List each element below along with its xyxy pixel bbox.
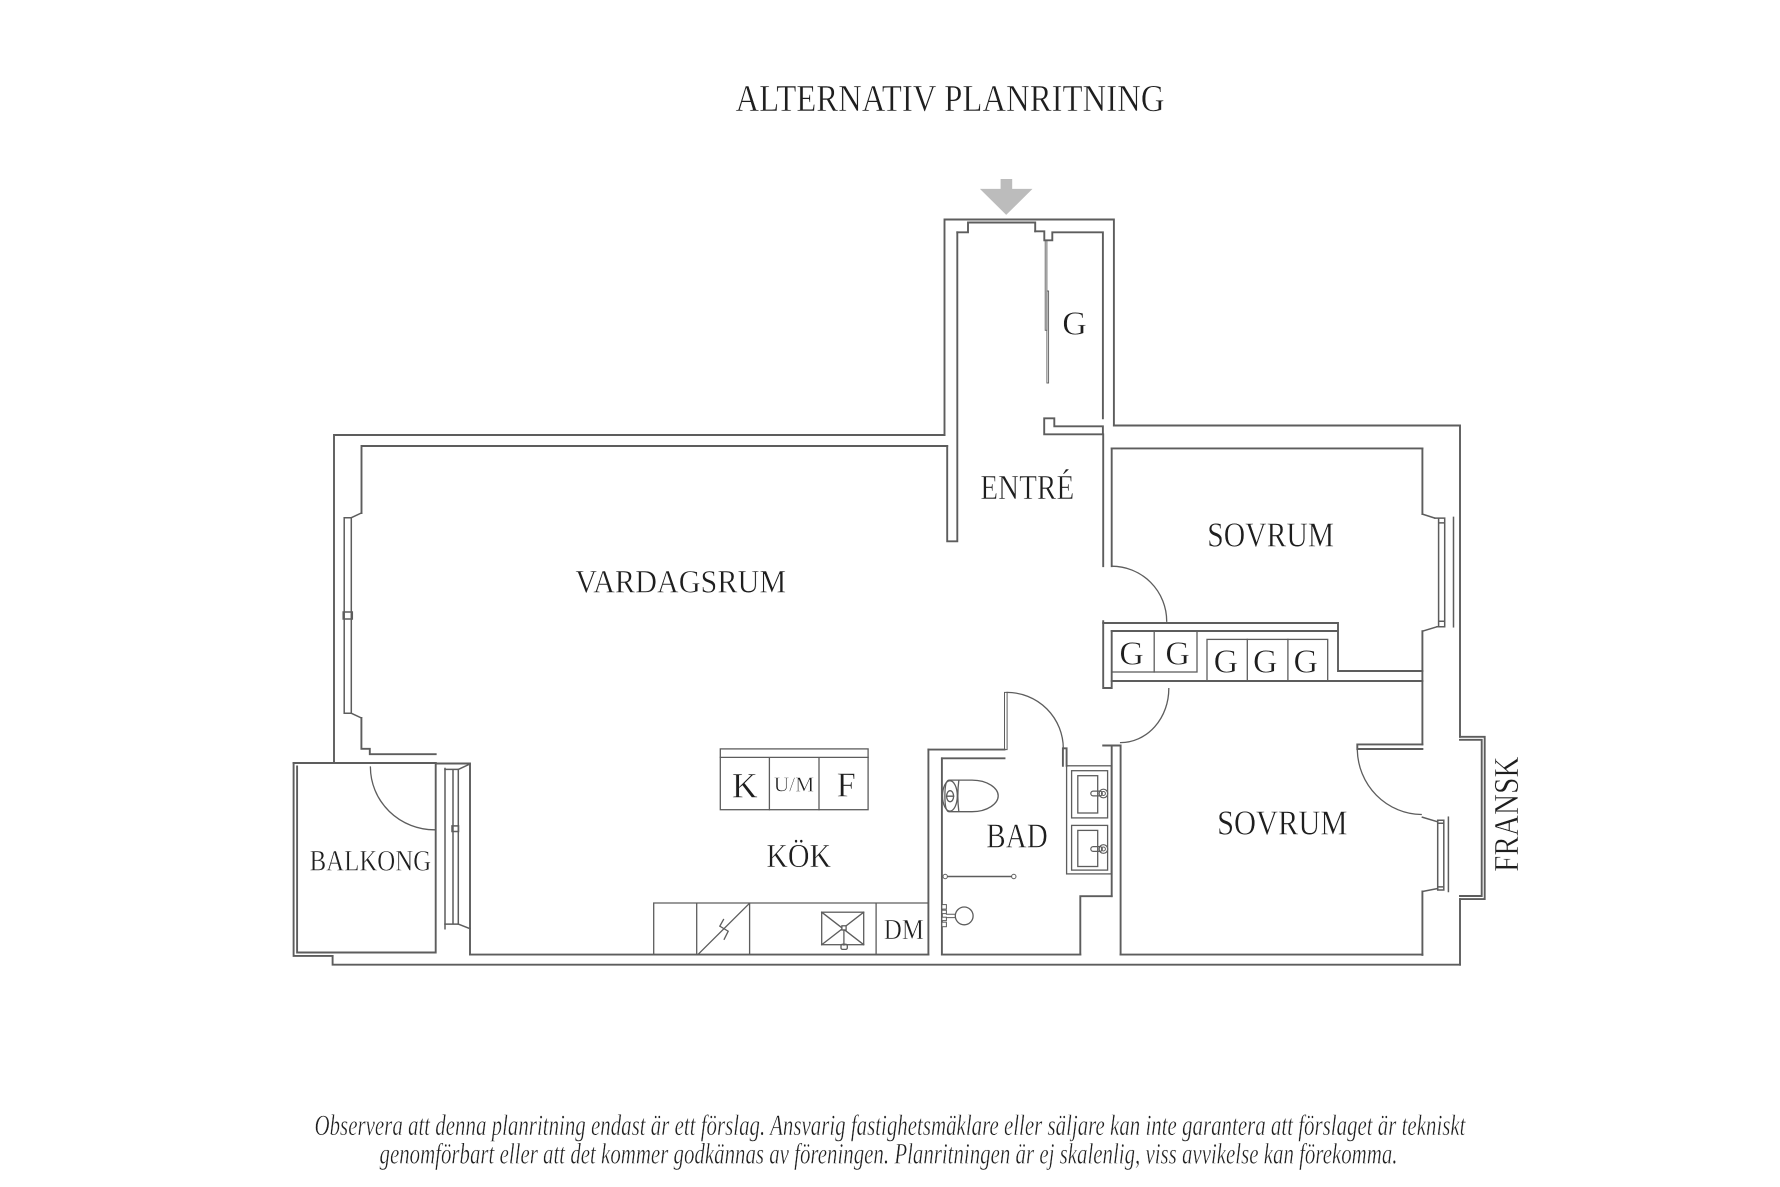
svg-text:G: G xyxy=(1294,643,1319,680)
svg-text:KÖK: KÖK xyxy=(766,838,831,875)
svg-text:BALKONG: BALKONG xyxy=(310,843,432,877)
svg-text:FRANSK: FRANSK xyxy=(1487,757,1526,872)
svg-text:F: F xyxy=(837,767,856,805)
svg-text:K: K xyxy=(732,766,758,806)
svg-text:DM: DM xyxy=(884,914,924,946)
svg-text:G: G xyxy=(1253,643,1278,680)
svg-text:genomförbart eller att det kom: genomförbart eller att det kommer godkän… xyxy=(380,1139,1398,1171)
svg-text:BAD: BAD xyxy=(986,816,1047,855)
svg-text:ENTRÉ: ENTRÉ xyxy=(980,468,1074,507)
svg-text:ALTERNATIV PLANRITNING: ALTERNATIV PLANRITNING xyxy=(736,79,1165,120)
svg-text:G: G xyxy=(1165,636,1190,673)
svg-text:G: G xyxy=(1062,305,1087,342)
svg-text:Observera att denna planritnin: Observera att denna planritning endast ä… xyxy=(315,1110,1467,1142)
svg-text:G: G xyxy=(1214,643,1239,680)
svg-text:SOVRUM: SOVRUM xyxy=(1217,804,1347,843)
svg-text:SOVRUM: SOVRUM xyxy=(1207,515,1334,554)
svg-text:U/M: U/M xyxy=(774,773,814,797)
svg-text:VARDAGSRUM: VARDAGSRUM xyxy=(575,565,786,601)
svg-text:G: G xyxy=(1119,636,1144,673)
